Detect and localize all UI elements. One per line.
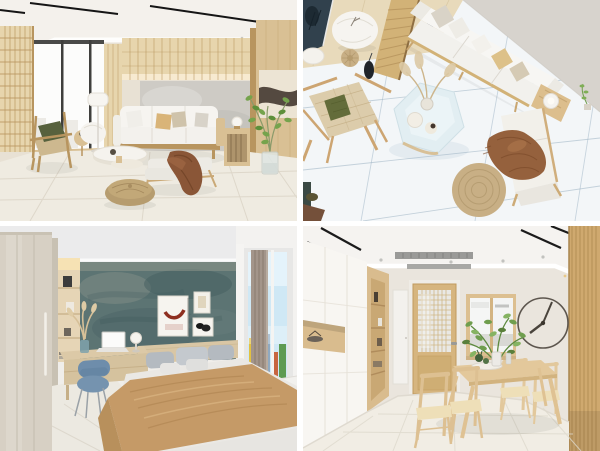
p3-wardrobe [0,232,58,451]
p1-shoji-screen [0,26,34,152]
living-room-perspective-scene [0,0,297,221]
p1-bean-bag [80,122,106,144]
p2-floor-pouf [303,48,324,64]
panel-bedroom-teal-wall[interactable] [0,226,297,451]
panel-living-room-perspective[interactable] [0,0,297,221]
photo-grid [0,0,600,451]
p4-slat-wall [569,226,600,451]
p2-rattan-stool [341,49,359,67]
p1-wall-art [259,70,297,118]
dining-room-scene [303,226,600,451]
p1-upper-lattice [122,38,250,80]
p4-shelf-unit [367,266,389,412]
living-room-overhead-scene [303,0,600,221]
p1-pouf [105,179,155,206]
bedroom-scene [0,226,297,451]
p2-jute-rug [452,163,506,217]
panel-dining-room[interactable] [303,226,600,451]
p4-hall-door [393,290,408,384]
panel-living-room-overhead[interactable] [303,0,600,221]
